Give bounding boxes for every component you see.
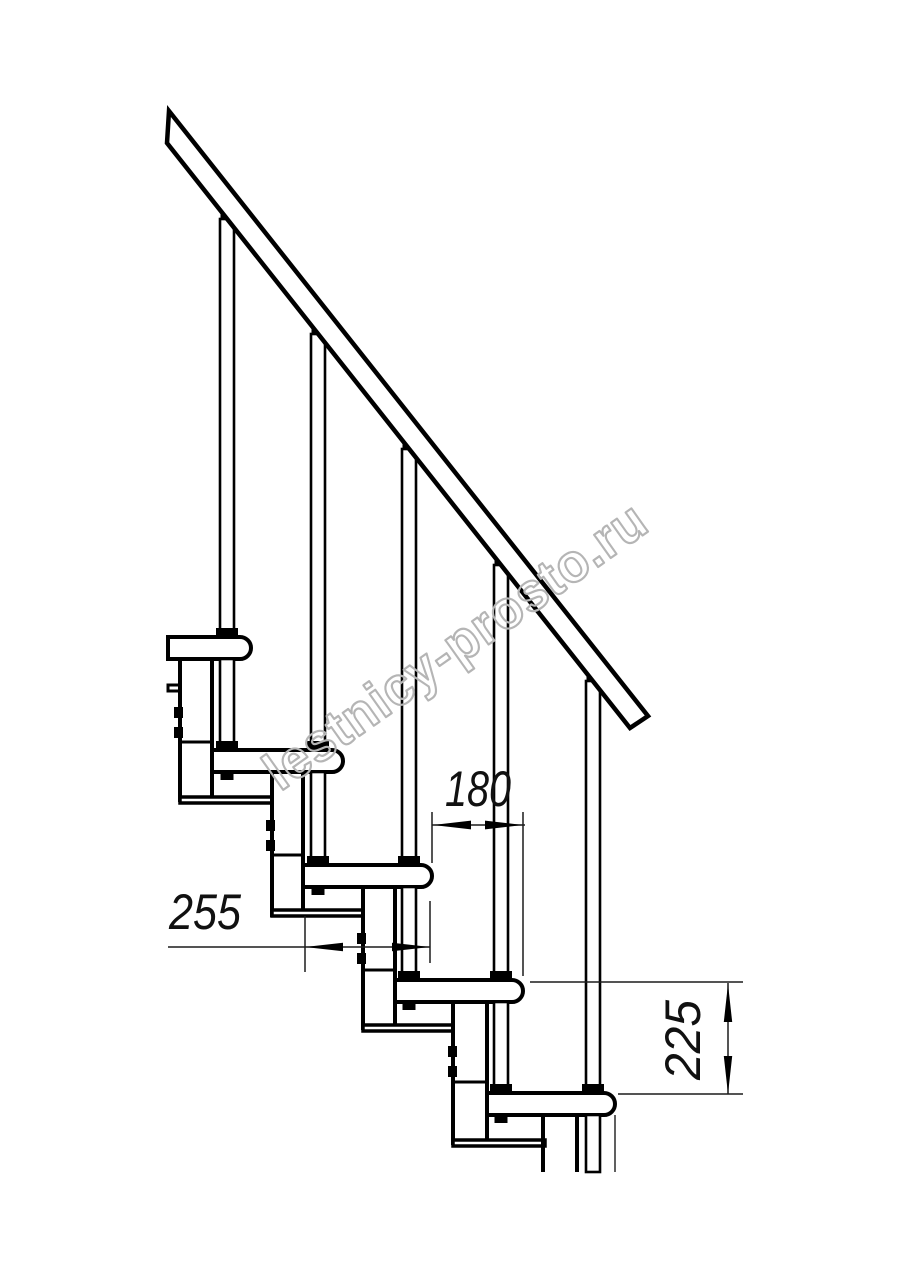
tread-connector: [582, 1084, 604, 1093]
module-base-plate: [363, 1025, 455, 1031]
tread-4: [395, 980, 523, 1002]
module-body: [180, 658, 212, 800]
tread-connector: [490, 1084, 512, 1093]
tread-connector: [398, 971, 420, 980]
baluster-tube-lower: [494, 1002, 508, 1093]
fixing-bolt: [174, 727, 183, 738]
staircase-drawing: 180 255 225 lestnicy-prosto.ru: [0, 0, 914, 1280]
baluster-2: [307, 325, 329, 895]
fixing-bolt: [357, 933, 366, 944]
baluster-tube-lower: [311, 772, 325, 865]
support-module-5: [543, 1115, 577, 1172]
module-body: [363, 887, 395, 1028]
baluster-tube-lower: [586, 1115, 600, 1172]
dimension-step-rise: 225: [530, 982, 743, 1094]
module-base-plate: [272, 910, 363, 916]
fixing-bolt: [448, 1046, 457, 1057]
through-nut: [221, 771, 234, 780]
tread-connector: [490, 971, 512, 980]
dimension-label: 225: [655, 1000, 711, 1081]
through-nut: [312, 886, 325, 895]
arrowhead-left: [433, 821, 471, 830]
fixing-bolt: [266, 840, 275, 851]
through-nut: [403, 1001, 416, 1010]
module-body: [453, 1002, 487, 1143]
baluster-tube: [586, 681, 600, 1093]
tread-3: [303, 865, 432, 887]
tread-connector: [398, 856, 420, 865]
through-nut: [495, 1114, 508, 1123]
dimension-label: 180: [445, 761, 511, 817]
fixing-bolt: [357, 953, 366, 964]
tread-5: [487, 1093, 615, 1115]
baluster-3: [398, 440, 420, 1010]
baluster-tube-lower: [402, 887, 416, 980]
baluster-tube: [220, 219, 234, 637]
fixing-bolt: [448, 1066, 457, 1077]
baluster-tube: [311, 334, 325, 750]
drawing-canvas: 180 255 225 lestnicy-prosto.ru: [0, 0, 914, 1280]
baluster-tube-lower: [220, 659, 234, 750]
tread-connector: [216, 628, 238, 637]
fixing-bolt: [266, 820, 275, 831]
dimension-label: 255: [168, 884, 241, 940]
module-base-plate: [453, 1140, 545, 1146]
tread-connector: [216, 741, 238, 750]
module-base-plate: [180, 797, 272, 803]
tread-1: [168, 637, 251, 659]
arrowhead-left: [305, 943, 343, 951]
baluster-1: [216, 210, 238, 780]
dimension-step-run: 180: [432, 761, 525, 976]
tread-connector: [307, 856, 329, 865]
arrowhead-up: [724, 984, 732, 1022]
fixing-bolt: [174, 707, 183, 718]
arrowhead-down: [724, 1056, 732, 1094]
